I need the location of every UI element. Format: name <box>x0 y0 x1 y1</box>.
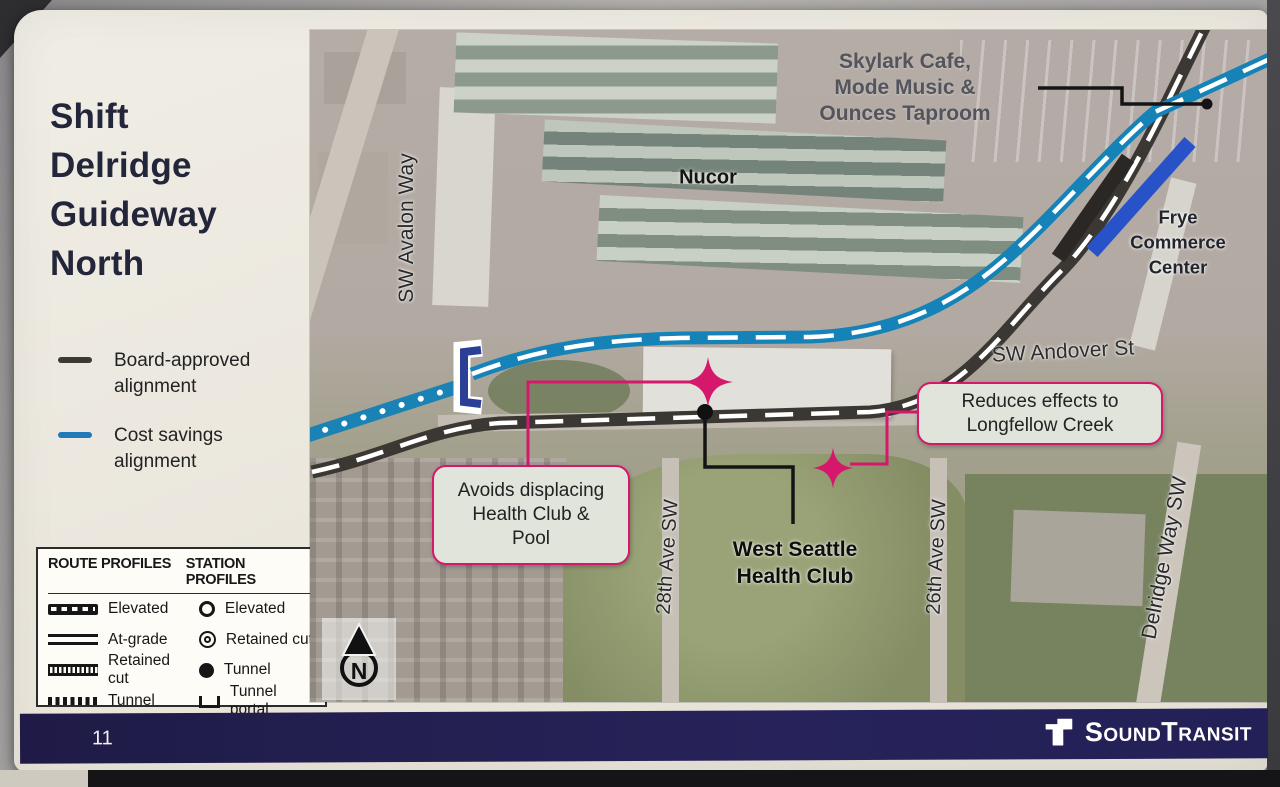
impact-star-avoids <box>683 357 733 407</box>
label-frye-commerce-center: Frye Commerce Center <box>1130 205 1226 280</box>
tunnel-line-icon <box>48 697 98 705</box>
route-profile-tunnel: Tunnel <box>48 686 185 717</box>
station-profile-tunnel-portal: Tunnel portal <box>185 686 315 717</box>
elevated-station-icon <box>199 601 215 617</box>
profiles-headers: ROUTE PROFILES STATION PROFILES <box>48 556 315 594</box>
photo-edge-bottom-left <box>0 770 88 787</box>
legend-label: Cost savings alignment <box>114 423 282 475</box>
at-grade-line-icon <box>48 634 98 645</box>
callout-reduces-effects: Reduces effects to Longfellow Creek <box>917 382 1163 445</box>
route-profiles-header: ROUTE PROFILES <box>48 556 186 588</box>
legend-item-board-approved: Board-approved alignment <box>58 348 282 400</box>
page-number: 11 <box>92 727 113 750</box>
route-profiles-column: Elevated At-grade Retained cut Tunnel <box>48 594 185 716</box>
north-label: N <box>322 658 396 685</box>
legend-label: Board-approved alignment <box>114 348 282 400</box>
label-nucor: Nucor <box>679 167 737 190</box>
tunnel-portal-icon <box>199 696 220 708</box>
cost-savings-line-swatch <box>58 432 92 438</box>
profile-label: Elevated <box>108 600 168 618</box>
soundtransit-logo-icon <box>1043 718 1075 748</box>
impact-star-reduces <box>813 448 854 489</box>
label-west-seattle-health-club: West Seattle Health Club <box>733 536 858 590</box>
retained-cut-line-icon <box>48 664 98 676</box>
elevated-line-icon <box>48 604 98 615</box>
north-arrow: N <box>322 618 396 700</box>
route-profile-retained-cut: Retained cut <box>48 655 185 686</box>
station-profile-retained-cut: Retained cut <box>185 625 315 656</box>
profile-label: Retained cut <box>226 631 313 649</box>
profile-label: Retained cut <box>108 652 185 688</box>
profile-label: Tunnel <box>224 661 271 679</box>
station-profiles-header: STATION PROFILES <box>186 556 315 588</box>
board-approved-line-swatch <box>58 357 92 363</box>
photo-edge-right <box>1267 0 1280 787</box>
station-profile-elevated: Elevated <box>185 594 315 625</box>
footer-band: 11 SoundTransit <box>20 708 1268 763</box>
aerial-map: Skylark Cafe, Mode Music & Ounces Taproo… <box>310 30 1268 702</box>
profile-label: Tunnel <box>108 692 155 710</box>
alignment-overlay <box>310 30 1268 702</box>
label-sw-avalon-way: SW Avalon Way <box>395 153 419 302</box>
station-profiles-column: Elevated Retained cut Tunnel Tunnel port… <box>185 594 315 716</box>
label-skylark-cafe: Skylark Cafe, Mode Music & Ounces Taproo… <box>819 49 990 127</box>
photo-edge-bottom <box>88 770 1280 787</box>
profile-label: Elevated <box>225 600 285 618</box>
callout-avoids-displacing: Avoids displacing Health Club & Pool <box>432 465 630 565</box>
soundtransit-wordmark: SoundTransit <box>1085 716 1252 748</box>
skylark-location-dot <box>1202 99 1213 110</box>
station-profile-tunnel: Tunnel <box>185 655 315 686</box>
retained-cut-station-icon <box>199 631 216 648</box>
route-profile-at-grade: At-grade <box>48 625 185 656</box>
slide-title: Shift Delridge Guideway North <box>50 92 310 288</box>
tunnel-station-icon <box>199 663 214 678</box>
legend-item-cost-savings: Cost savings alignment <box>58 423 282 475</box>
slide: Shift Delridge Guideway North Board-appr… <box>14 10 1268 772</box>
leader-line-health-club <box>705 420 793 524</box>
route-profile-elevated: Elevated <box>48 594 185 625</box>
profiles-legend-box: ROUTE PROFILES STATION PROFILES Elevated… <box>36 547 327 707</box>
leader-line-reduces-callout <box>850 412 918 464</box>
soundtransit-brand: SoundTransit <box>1043 716 1252 748</box>
profile-label: At-grade <box>108 631 167 649</box>
tunnel-station-dot-marker <box>697 404 713 420</box>
